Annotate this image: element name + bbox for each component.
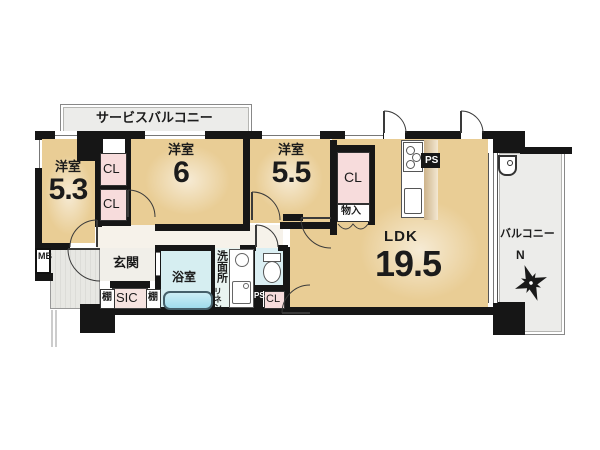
slop-sink-icon <box>498 155 517 176</box>
kitchen-wall-strip <box>424 140 438 220</box>
shelf-left-label: 棚 <box>102 293 112 304</box>
linen-label: リネン <box>213 287 221 311</box>
genkan-label: 玄関 <box>113 256 139 270</box>
ldk-label: LDK 19.5 <box>366 229 450 283</box>
sic-label: SIC <box>116 291 138 305</box>
mono-ire-label: 物入 <box>341 207 361 218</box>
washroom-label: 洗面所 <box>215 250 227 283</box>
bedroom1-label: 洋室 5.3 <box>40 160 96 205</box>
cl-b3-label: CL <box>344 170 362 185</box>
bedroom2-label: 洋室 6 <box>136 143 226 188</box>
ps-kitchen-label: PS <box>425 156 438 167</box>
bedroom3-label: 洋室 5.5 <box>252 143 330 188</box>
balcony-sliding-window <box>488 153 498 303</box>
kitchen-sink-icon <box>404 188 422 214</box>
floor-plan: サービスバルコニー バルコニー <box>0 0 600 450</box>
cl-b1-lower-label: CL <box>103 197 120 211</box>
bathtub-icon <box>163 291 213 310</box>
service-balcony-label: サービスバルコニー <box>96 111 213 125</box>
stove-icon <box>403 142 423 172</box>
balcony-label: バルコニー <box>500 229 555 241</box>
compass-north-label: N <box>516 249 525 262</box>
shelf-right-label: 棚 <box>148 293 158 304</box>
bath-label: 浴室 <box>172 271 196 284</box>
entrance-porch <box>50 248 100 309</box>
cl-hall-label: CL <box>266 294 280 306</box>
cl-b1-upper-label: CL <box>103 162 120 176</box>
washbasin-icon <box>229 249 254 308</box>
ps-lower-label: PS <box>254 292 262 300</box>
mb-label: MB <box>38 251 48 261</box>
